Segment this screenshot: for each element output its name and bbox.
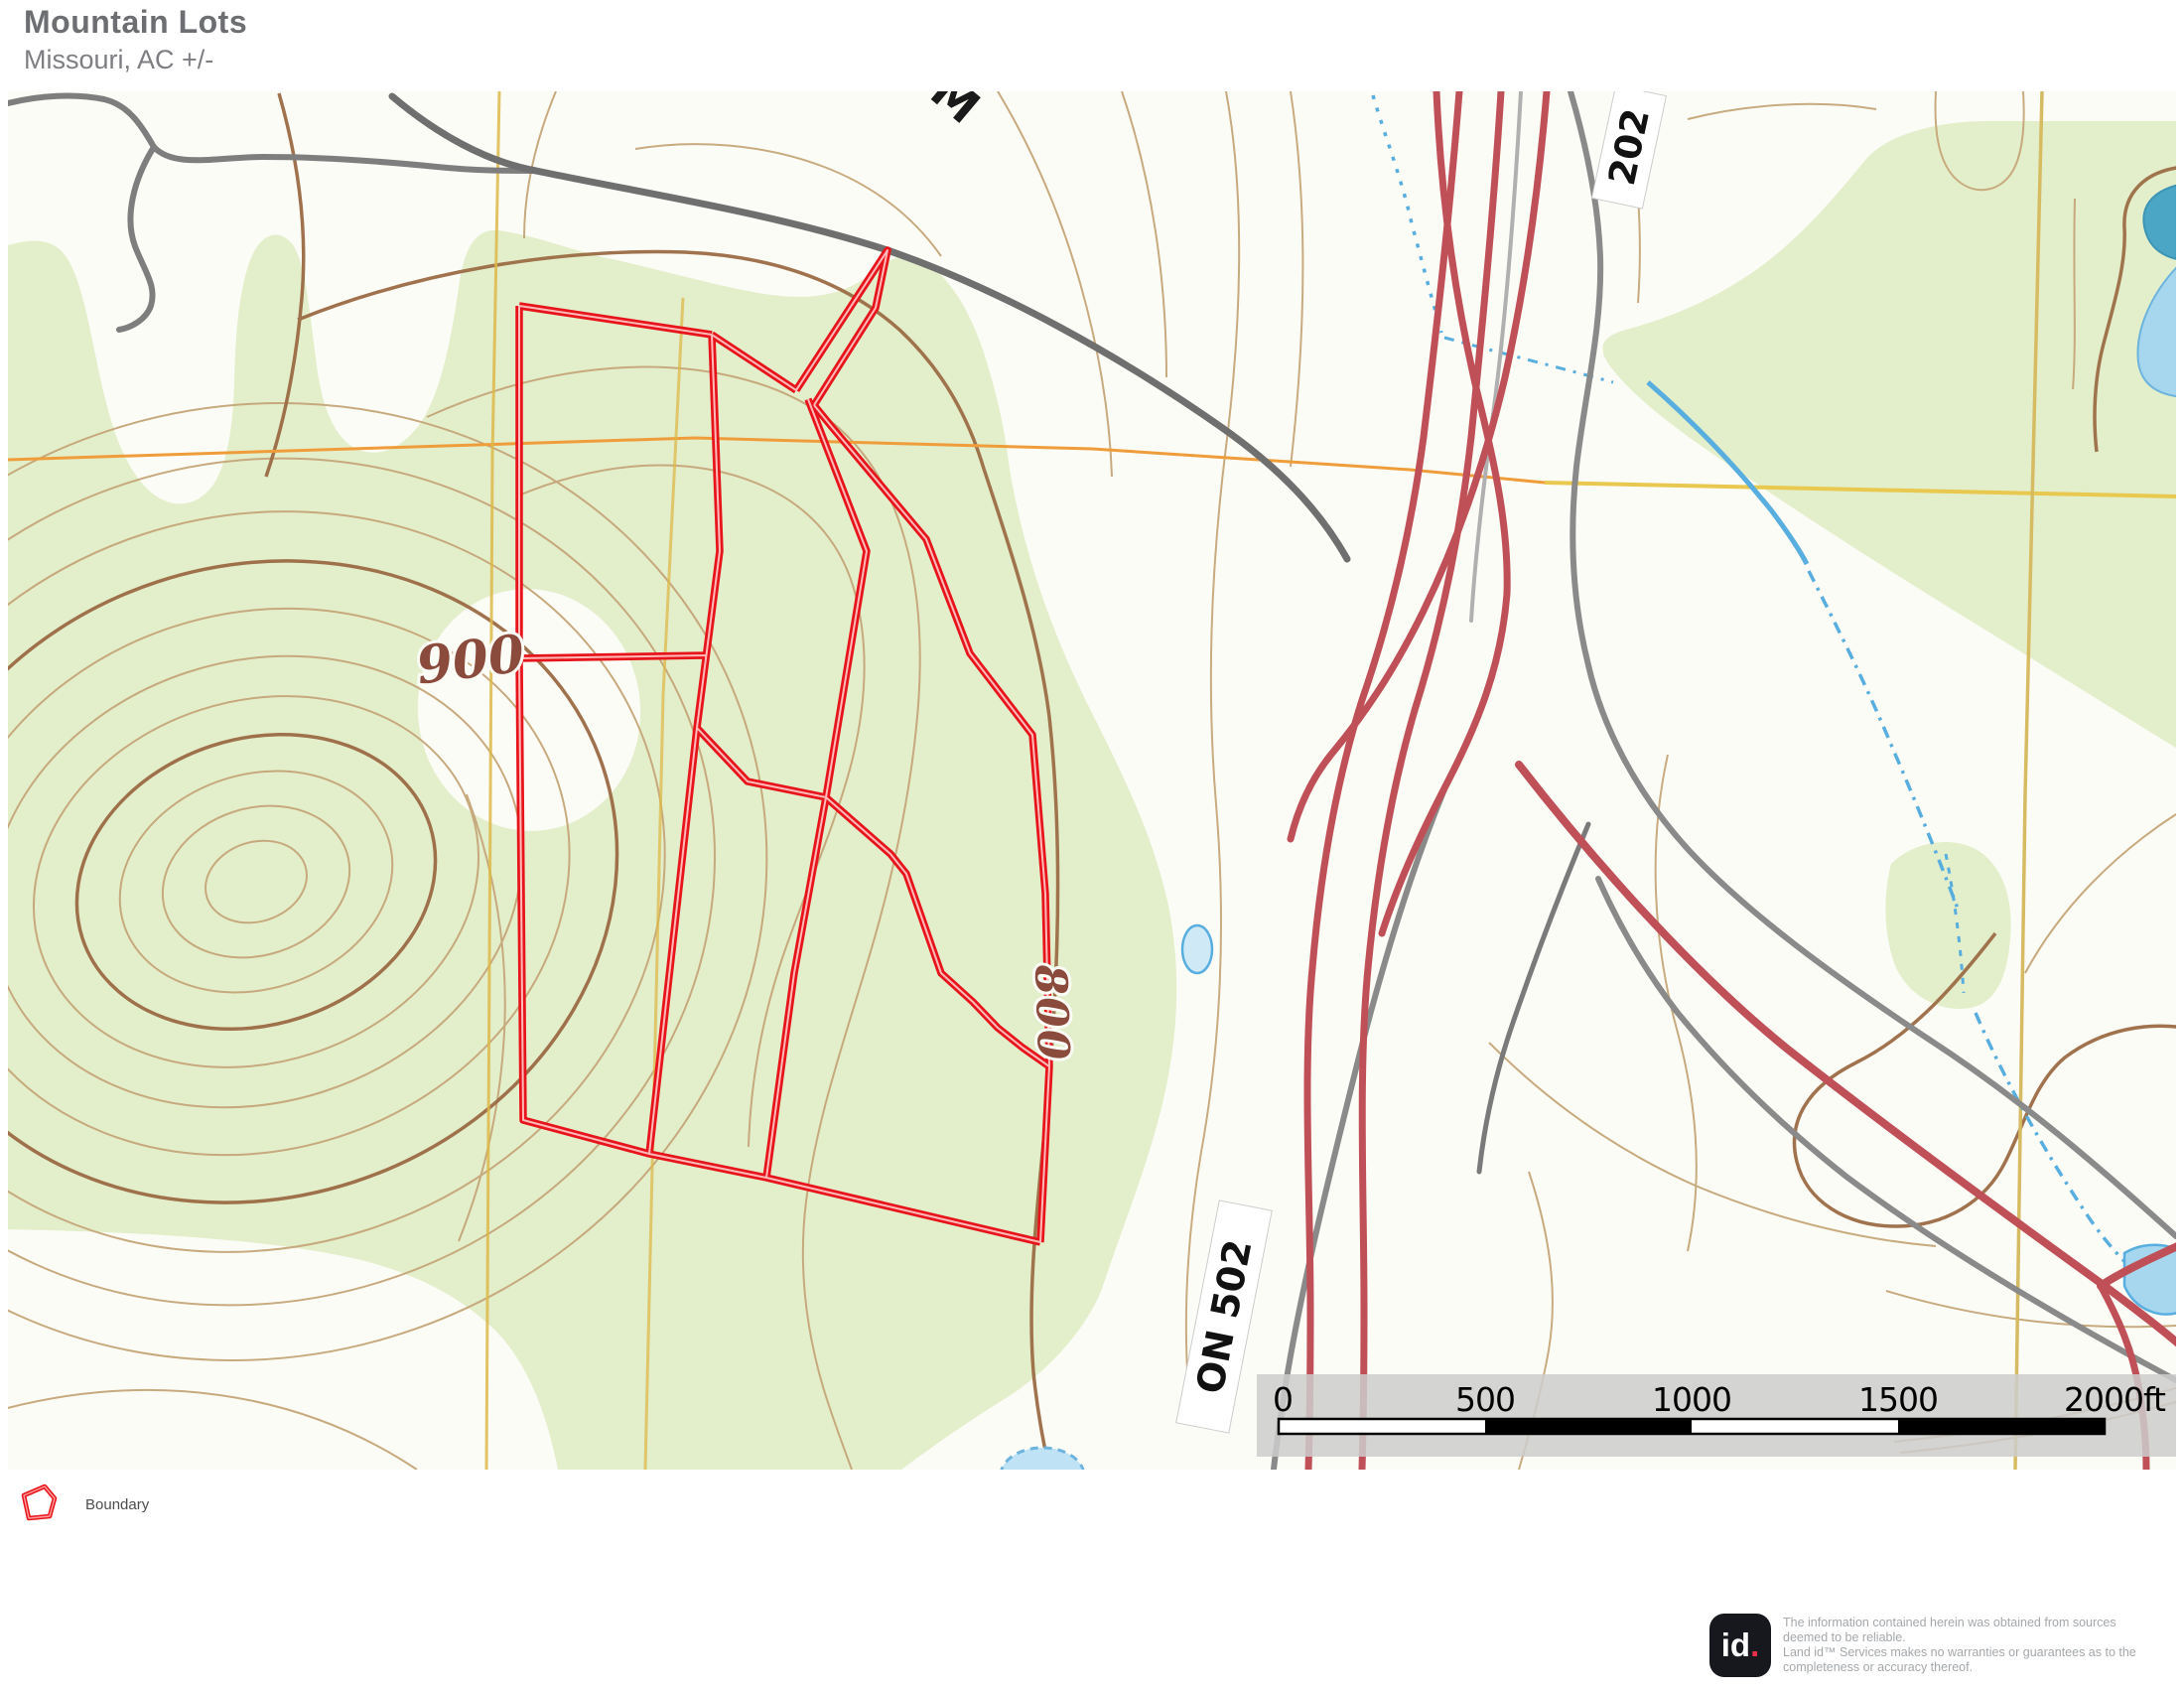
scale-tick-0: 0 [1273,1380,1293,1419]
boundary-legend-icon [14,1481,60,1528]
logo-dot: . [1750,1626,1759,1664]
pond-bottom [1001,1448,1084,1503]
scale-bar: 0 500 1000 1500 2000ft [1257,1374,2176,1457]
scale-tick-1500: 1500 [1858,1380,1938,1419]
disclaimer-line: Land id™ Services makes no warranties or… [1783,1645,2136,1660]
map-legend: Boundary [14,1481,149,1528]
landid-logo: id. [1709,1614,1771,1677]
contour-label-800: 800 [1024,963,1078,1063]
scale-tick-1000: 1000 [1652,1380,1731,1419]
logo-text: id [1721,1626,1750,1664]
map-viewport[interactable]: M 202 ON 502 900 800 [0,0,2184,1688]
disclaimer-line: deemed to be reliable. [1783,1630,2136,1645]
page: Mountain Lots Missouri, AC +/- [0,0,2184,1688]
disclaimer-text: The information contained herein was obt… [1783,1614,2136,1677]
disclaimer-line: completeness or accuracy thereof. [1783,1660,2136,1675]
disclaimer-line: The information contained herein was obt… [1783,1616,2136,1630]
scale-tick-500: 500 [1455,1380,1515,1419]
footer: id. The information contained herein was… [1709,1614,2176,1677]
scale-tick-2000: 2000ft [2064,1380,2166,1419]
legend-item-boundary: Boundary [85,1496,149,1513]
pond-center [1182,925,1212,973]
basemap: M 202 ON 502 900 800 [0,64,2184,1503]
map-canvas[interactable]: M 202 ON 502 900 800 [0,0,2184,1688]
